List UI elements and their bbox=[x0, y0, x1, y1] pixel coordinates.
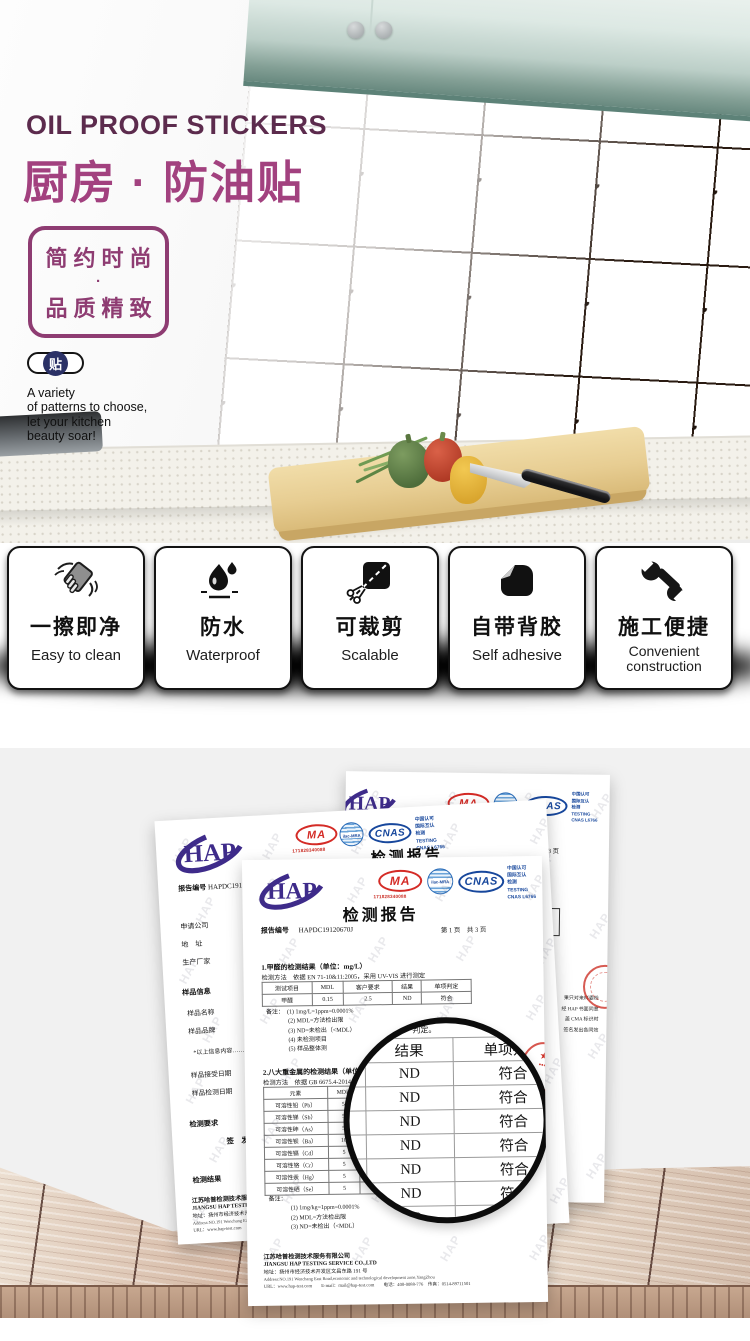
field-label: 生产厂家 bbox=[182, 956, 211, 968]
feature-en-line: Convenient bbox=[626, 644, 701, 659]
hap-watermark: HAP bbox=[365, 933, 392, 964]
feature-label-en: Self adhesive bbox=[472, 647, 562, 664]
report-footer: 江苏哈普检测技术服务有限公司JIANGSU HAP TESTING SERVIC… bbox=[263, 1250, 535, 1290]
sample-field-label: 样品名称 bbox=[187, 1006, 215, 1018]
hero-title-zh: 厨房 · 防油贴 bbox=[23, 146, 304, 211]
cabinet-knob bbox=[375, 21, 393, 39]
section2-notes: 备注：(1) 1mg/kg=1ppm=0.0001%(2) MDL=方法检出限(… bbox=[269, 1195, 360, 1233]
hero-title-en: OIL PROOF STICKERS bbox=[26, 110, 327, 141]
tagline-line: A variety bbox=[27, 386, 147, 400]
sponge-wipe-icon bbox=[52, 555, 100, 609]
features-section: 一擦即净 Easy to clean 防水 Waterproof bbox=[0, 543, 750, 708]
vegetables bbox=[360, 424, 620, 534]
report-title: 检测报告 bbox=[342, 901, 418, 926]
hap-watermark: HAP bbox=[547, 1174, 570, 1206]
report-no-label: 报告编号 bbox=[261, 926, 289, 934]
feature-card-self-adhesive: 自带背胶 Self adhesive bbox=[448, 546, 586, 690]
accreditation-line: 中国认可 bbox=[572, 791, 598, 798]
date-field-label: 样品接受日期 bbox=[190, 1067, 231, 1079]
sticker-badge: 贴 bbox=[27, 352, 84, 374]
accreditation-line: CNAS L6766 bbox=[571, 818, 597, 825]
feature-label-en: Waterproof bbox=[186, 647, 260, 664]
knife-handle bbox=[520, 468, 612, 505]
sticker-badge-glyph: 贴 bbox=[43, 351, 68, 376]
water-drop-icon bbox=[199, 555, 247, 609]
accreditation-text: 中国认可国际互认检测TESTINGCNAS L6766 bbox=[507, 865, 536, 901]
feature-label-en: Scalable bbox=[341, 647, 399, 664]
note-line: (3) ND=未检出（<MDL） bbox=[269, 1222, 360, 1233]
sample-info-header: 样品信息 bbox=[182, 986, 211, 998]
feature-label-zh: 防水 bbox=[200, 611, 246, 641]
certificates-section: HAP MA 171828340088 ilac-MRA CNAS 中国认可国际… bbox=[0, 748, 750, 1341]
feature-label-zh: 可裁剪 bbox=[336, 611, 405, 641]
slogan-line: 简约时尚 bbox=[45, 241, 157, 273]
feature-cards: 一擦即净 Easy to clean 防水 Waterproof bbox=[7, 546, 733, 690]
hap-watermark: HAP bbox=[604, 1090, 610, 1121]
scissors-cut-icon bbox=[346, 555, 394, 609]
feature-label-zh: 施工便捷 bbox=[618, 611, 710, 641]
note-line: (3) ND=未检出（<MDL） bbox=[266, 1026, 355, 1037]
report-no-label: 报告编号 bbox=[178, 883, 206, 893]
page-info: 第 1 页 共 3 页 bbox=[441, 924, 487, 935]
ilac-mra-logo: ilac-MRA bbox=[427, 868, 453, 894]
hero-tagline: A varietyof patterns to choose,let your … bbox=[27, 386, 147, 443]
requirement-header: 检测要求 bbox=[189, 1118, 218, 1130]
sticker-peel-icon bbox=[493, 555, 541, 609]
magnified-result-table: 结果 单项判定 ND符合ND符合ND符合ND符合ND符合ND符合ND符合ND符合 bbox=[344, 1036, 548, 1225]
accreditation-text: 中国认可国际互认检测TESTINGCNAS L6766 bbox=[571, 791, 598, 824]
sample-field-label: 样品品牌 bbox=[188, 1024, 216, 1036]
hap-logo-text: HAP bbox=[267, 878, 317, 905]
hap-watermark: HAP bbox=[607, 850, 610, 881]
hap-logo-text: HAP bbox=[183, 838, 237, 868]
hap-watermark: HAP bbox=[586, 910, 609, 941]
tagline-line: beauty soar! bbox=[27, 429, 147, 443]
report-no-value: HAPDC19120670J bbox=[299, 926, 354, 935]
hap-watermark: HAP bbox=[259, 830, 285, 862]
field-label: 申请公司 bbox=[180, 920, 209, 932]
feature-label-zh: 一擦即净 bbox=[30, 611, 122, 641]
cabinet-knob bbox=[347, 21, 365, 39]
feature-label-en: Easy to clean bbox=[31, 647, 121, 664]
cma-number: 171828340088 bbox=[373, 894, 406, 899]
wrench-icon bbox=[640, 555, 688, 609]
pepper-stem bbox=[405, 434, 412, 444]
magnified-fragment: 判定。 bbox=[412, 1024, 436, 1035]
date-field-label: 样品检测日期 bbox=[191, 1085, 232, 1097]
tagline-line: let your kitchen bbox=[27, 415, 147, 429]
slogan-box: 简约时尚 · 品质精致 bbox=[28, 226, 169, 338]
feature-en-line: construction bbox=[626, 659, 701, 674]
report-number-row: 报告编号 HAPDC19120670J bbox=[261, 925, 353, 936]
feature-label-zh: 自带背胶 bbox=[471, 611, 563, 641]
formaldehyde-table: 测试项目 MDL 客户要求 结果 单项判定 甲醛 0.15 2.5 ND 符合 bbox=[262, 979, 472, 1007]
test-report-page-front: HAP MA 171828340088 检测报告 ilac-MRA CNAS 中… bbox=[242, 856, 548, 1306]
pepper-stem bbox=[439, 432, 445, 442]
floor-white-strip bbox=[0, 1318, 750, 1341]
magnifier-circle: 判定。 结果 单项判定 ND符合ND符合ND符合ND符合ND符合ND符合ND符合… bbox=[342, 1016, 548, 1225]
ilac-mra-logo: ilac-MRA bbox=[339, 822, 364, 847]
ilac-mra-label: ilac-MRA bbox=[339, 831, 364, 839]
slogan-line: 品质精致 bbox=[45, 291, 157, 323]
product-detail-image: OIL PROOF STICKERS 厨房 · 防油贴 简约时尚 · 品质精致 … bbox=[0, 0, 750, 1341]
lens-table-body: ND符合ND符合ND符合ND符合ND符合ND符合ND符合ND符合 bbox=[345, 1060, 548, 1225]
feature-card-waterproof: 防水 Waterproof bbox=[154, 546, 292, 690]
slogan-dot: · bbox=[96, 276, 101, 288]
feature-card-easy-to-clean: 一擦即净 Easy to clean bbox=[7, 546, 145, 690]
hero-section: OIL PROOF STICKERS 厨房 · 防油贴 简约时尚 · 品质精致 … bbox=[0, 0, 750, 543]
section1-notes: 备注： (1) 1mg/L=1ppm=0.0001%(2) MDL=方法检出限(… bbox=[266, 1008, 356, 1056]
cma-logo: MA bbox=[295, 823, 338, 846]
hap-watermark: HAP bbox=[453, 932, 480, 963]
feature-card-convenient-construction: 施工便捷 Convenientconstruction bbox=[595, 546, 733, 690]
result-header: 检测结果 bbox=[192, 1174, 221, 1186]
accreditation-line: CNAS L6766 bbox=[507, 894, 536, 902]
ilac-mra-label: ilac-MRA bbox=[427, 879, 453, 887]
cnas-logo: CNAS bbox=[458, 870, 504, 893]
tagline-line: of patterns to choose, bbox=[27, 400, 147, 414]
yellow-pepper bbox=[450, 456, 487, 504]
hap-lab-logo: HAP bbox=[256, 869, 333, 912]
cma-number: 171828340088 bbox=[292, 847, 325, 854]
note-line: (5) 样品整体测 bbox=[266, 1045, 355, 1056]
sample-note: *以上信息内容…… bbox=[193, 1045, 244, 1057]
feature-label-en: Convenientconstruction bbox=[626, 644, 701, 673]
feature-card-scalable: 可裁剪 Scalable bbox=[301, 546, 439, 690]
cma-logo: MA bbox=[378, 870, 422, 893]
field-label: 地 址 bbox=[181, 939, 203, 950]
cnas-logo: CNAS bbox=[368, 822, 412, 844]
